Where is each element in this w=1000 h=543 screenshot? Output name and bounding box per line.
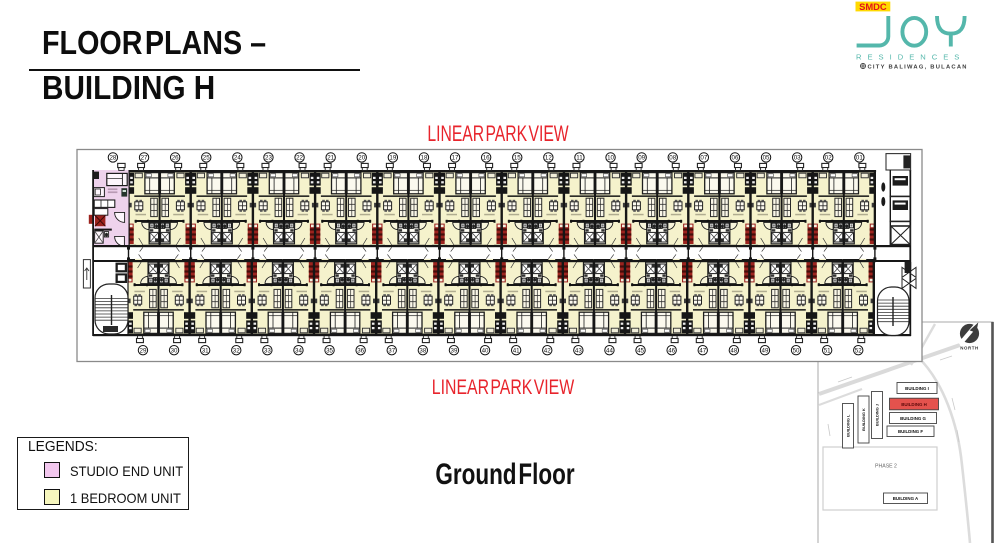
svg-text:21: 21 [327,155,334,162]
svg-text:15: 15 [514,155,521,162]
svg-text:46: 46 [668,347,675,354]
svg-text:42: 42 [544,347,551,354]
svg-text:35: 35 [326,347,333,354]
svg-text:08: 08 [669,155,676,162]
svg-text:36: 36 [357,347,364,354]
svg-text:52: 52 [855,347,862,354]
svg-text:32: 32 [233,347,240,354]
svg-text:BUILDING H: BUILDING H [901,402,927,407]
svg-text:BUILDING L: BUILDING L [846,414,851,437]
svg-text:09: 09 [638,155,645,162]
svg-text:02: 02 [825,155,832,162]
svg-text:34: 34 [295,347,302,354]
svg-text:24: 24 [234,155,241,162]
svg-text:39: 39 [451,347,458,354]
svg-text:37: 37 [388,347,395,354]
svg-text:NORTH: NORTH [960,346,979,351]
svg-text:PHASE 2: PHASE 2 [875,464,897,470]
svg-text:BUILDING F: BUILDING F [898,429,923,434]
svg-text:BUILDING K: BUILDING K [861,408,866,431]
svg-text:43: 43 [575,347,582,354]
svg-text:06: 06 [732,155,739,162]
svg-text:10: 10 [607,155,614,162]
svg-text:38: 38 [419,347,426,354]
svg-text:01: 01 [856,155,863,162]
svg-text:33: 33 [264,347,271,354]
svg-text:23: 23 [265,155,272,162]
svg-text:30: 30 [171,347,178,354]
svg-text:07: 07 [700,155,707,162]
svg-text:26: 26 [172,155,179,162]
svg-text:25: 25 [203,155,210,162]
svg-text:45: 45 [637,347,644,354]
svg-text:31: 31 [202,347,209,354]
svg-text:27: 27 [141,155,148,162]
svg-text:47: 47 [699,347,706,354]
svg-text:29: 29 [140,347,147,354]
svg-text:41: 41 [513,347,520,354]
svg-text:51: 51 [824,347,831,354]
svg-text:03: 03 [794,155,801,162]
svg-text:44: 44 [606,347,613,354]
svg-text:BUILDING I: BUILDING I [905,386,929,391]
svg-text:05: 05 [763,155,770,162]
svg-text:48: 48 [730,347,737,354]
svg-text:19: 19 [389,155,396,162]
svg-text:18: 18 [421,155,428,162]
svg-text:49: 49 [762,347,769,354]
svg-text:17: 17 [452,155,459,162]
svg-text:50: 50 [793,347,800,354]
svg-text:11: 11 [576,155,583,162]
svg-text:16: 16 [483,155,490,162]
svg-text:40: 40 [482,347,489,354]
svg-text:22: 22 [296,155,303,162]
svg-text:BUILDING G: BUILDING G [900,416,926,421]
svg-text:BUILDING J: BUILDING J [875,404,880,426]
svg-text:BUILDING A: BUILDING A [893,496,919,501]
svg-text:28: 28 [109,155,116,162]
svg-text:12: 12 [545,155,552,162]
svg-text:20: 20 [358,155,365,162]
